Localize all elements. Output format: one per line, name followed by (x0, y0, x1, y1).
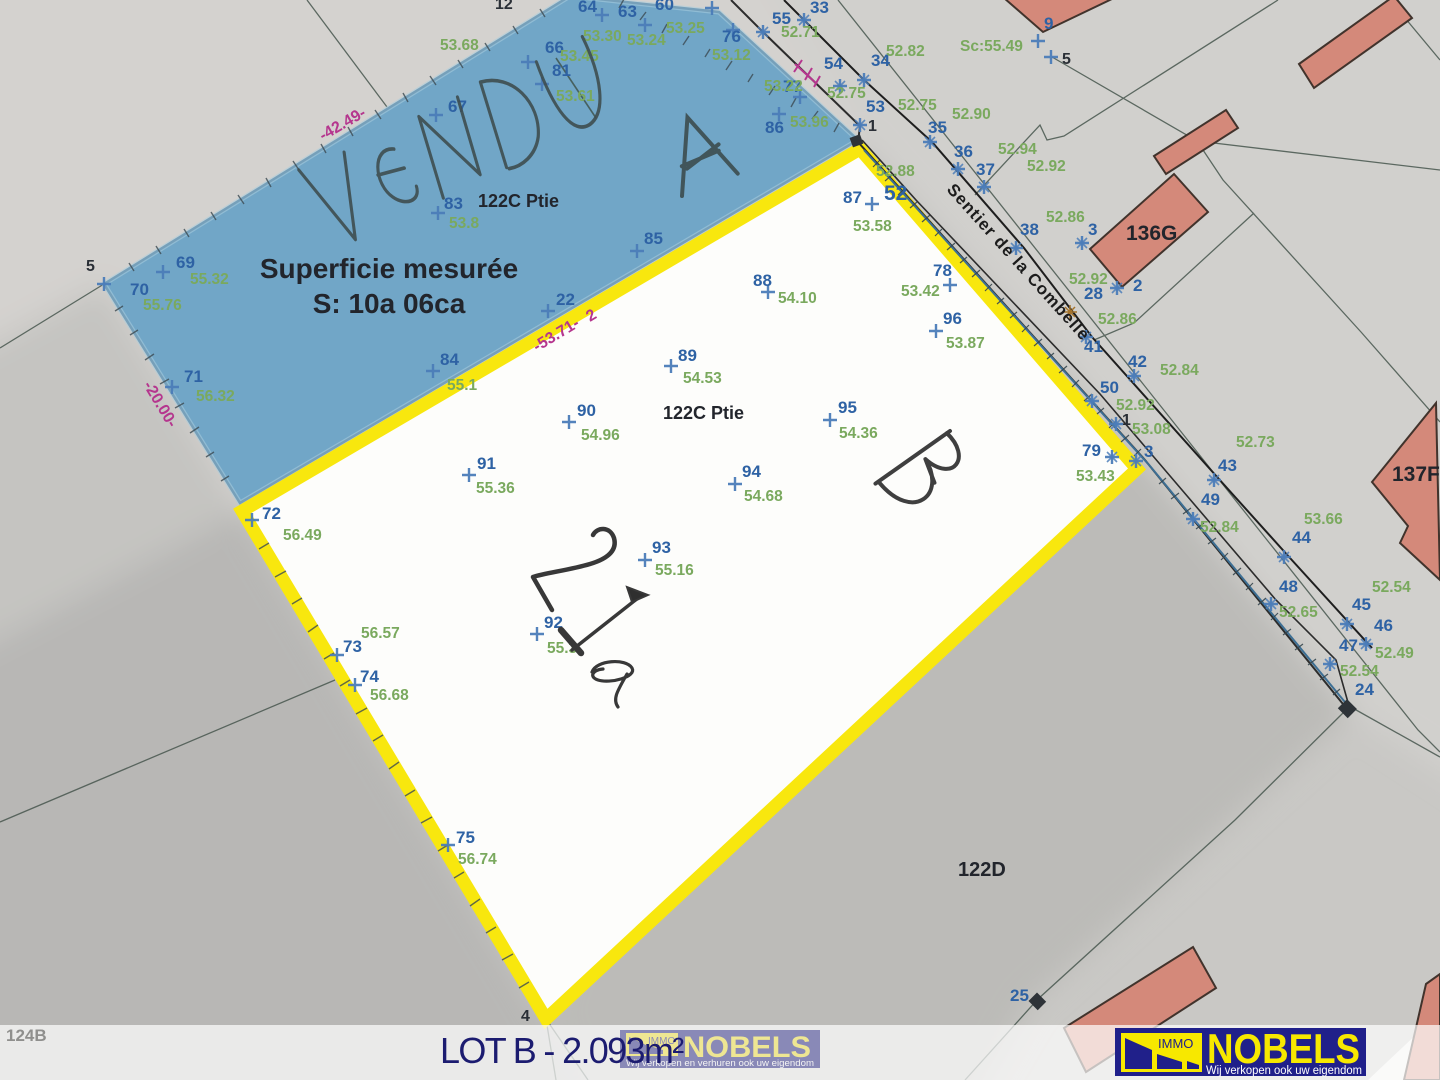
svg-text:53.66: 53.66 (1304, 511, 1343, 528)
svg-text:55.16: 55.16 (655, 562, 694, 579)
svg-text:56.74: 56.74 (458, 851, 497, 868)
svg-text:35: 35 (928, 118, 947, 137)
svg-text:69: 69 (176, 253, 195, 272)
svg-text:41: 41 (1084, 337, 1103, 356)
svg-text:53.22: 53.22 (764, 78, 803, 95)
svg-text:1: 1 (1122, 412, 1131, 429)
svg-text:52.84: 52.84 (1160, 362, 1199, 379)
svg-text:25: 25 (1010, 986, 1029, 1005)
svg-text:42: 42 (1128, 352, 1147, 371)
svg-text:52.90: 52.90 (952, 106, 991, 123)
svg-text:52.54: 52.54 (1340, 663, 1379, 680)
svg-text:9: 9 (1044, 14, 1053, 33)
svg-text:5: 5 (1062, 51, 1071, 68)
svg-text:53.08: 53.08 (1132, 421, 1171, 438)
svg-text:52.88: 52.88 (876, 163, 915, 180)
svg-text:53.61: 53.61 (556, 88, 595, 105)
svg-text:124B: 124B (6, 1026, 47, 1045)
svg-text:90: 90 (577, 401, 596, 420)
svg-text:12: 12 (495, 0, 513, 13)
svg-text:S: 10a 06ca: S: 10a 06ca (313, 288, 466, 319)
svg-text:53.25: 53.25 (666, 20, 705, 37)
svg-text:53.12: 53.12 (712, 47, 751, 64)
svg-text:52.73: 52.73 (1236, 434, 1275, 451)
svg-text:71: 71 (184, 367, 203, 386)
svg-text:96: 96 (943, 309, 962, 328)
svg-text:64: 64 (578, 0, 597, 16)
svg-text:137F2: 137F2 (1392, 463, 1440, 486)
svg-text:94: 94 (742, 462, 761, 481)
svg-text:52.49: 52.49 (1375, 645, 1414, 662)
svg-text:93: 93 (652, 538, 671, 557)
svg-text:52.86: 52.86 (1098, 311, 1137, 328)
svg-text:78: 78 (933, 261, 952, 280)
svg-text:LOT B - 2.093m²: LOT B - 2.093m² (440, 1030, 684, 1071)
svg-text:56.57: 56.57 (361, 625, 400, 642)
svg-text:52.94: 52.94 (998, 141, 1037, 158)
svg-text:38: 38 (1020, 220, 1039, 239)
svg-text:52.92: 52.92 (1069, 271, 1108, 288)
svg-text:83: 83 (444, 194, 463, 213)
svg-text:3: 3 (1088, 220, 1097, 239)
svg-text:54: 54 (824, 54, 843, 73)
svg-text:52.75: 52.75 (827, 85, 866, 102)
svg-text:55.32: 55.32 (190, 271, 229, 288)
svg-text:3: 3 (1144, 442, 1153, 461)
svg-text:48: 48 (1279, 577, 1298, 596)
svg-text:4: 4 (521, 1008, 530, 1025)
svg-text:122C Ptie: 122C Ptie (663, 403, 744, 423)
svg-text:44: 44 (1292, 528, 1311, 547)
svg-text:52: 52 (884, 182, 907, 205)
svg-text:2: 2 (1133, 276, 1142, 295)
svg-text:53.43: 53.43 (1076, 468, 1115, 485)
svg-text:53.30: 53.30 (583, 28, 622, 45)
svg-text:36: 36 (954, 142, 973, 161)
svg-text:95: 95 (838, 398, 857, 417)
svg-text:56.49: 56.49 (283, 527, 322, 544)
svg-text:52.86: 52.86 (1046, 209, 1085, 226)
svg-text:52.71: 52.71 (781, 24, 820, 41)
svg-text:53.87: 53.87 (946, 335, 985, 352)
svg-text:43: 43 (1218, 456, 1237, 475)
svg-text:52.82: 52.82 (886, 43, 925, 60)
svg-text:73: 73 (343, 637, 362, 656)
svg-text:55.1: 55.1 (447, 377, 478, 394)
svg-text:22: 22 (556, 290, 575, 309)
svg-text:52.54: 52.54 (1372, 579, 1411, 596)
svg-text:79: 79 (1082, 441, 1101, 460)
svg-text:52.84: 52.84 (1200, 519, 1239, 536)
svg-text:54.96: 54.96 (581, 427, 620, 444)
svg-text:Superficie mesurée: Superficie mesurée (260, 253, 518, 284)
svg-text:91: 91 (477, 454, 496, 473)
svg-text:53.96: 53.96 (790, 114, 829, 131)
svg-text:IMMO: IMMO (1158, 1036, 1193, 1051)
svg-text:46: 46 (1374, 616, 1393, 635)
svg-text:24: 24 (1355, 680, 1374, 699)
svg-text:89: 89 (678, 346, 697, 365)
svg-text:84: 84 (440, 350, 459, 369)
svg-text:63: 63 (618, 2, 637, 21)
svg-text:Sc:55.49: Sc:55.49 (960, 38, 1023, 55)
svg-text:60: 60 (655, 0, 674, 14)
svg-text:74: 74 (360, 667, 379, 686)
svg-text:87: 87 (843, 188, 862, 207)
svg-text:75: 75 (456, 828, 475, 847)
svg-text:88: 88 (753, 271, 772, 290)
svg-text:5: 5 (86, 258, 95, 275)
svg-text:53.24: 53.24 (627, 32, 666, 49)
svg-text:136G: 136G (1126, 222, 1177, 245)
svg-text:47: 47 (1339, 636, 1358, 655)
svg-text:76: 76 (722, 27, 741, 46)
svg-text:33: 33 (810, 0, 829, 17)
svg-text:52.92: 52.92 (1027, 158, 1066, 175)
svg-text:86: 86 (765, 118, 784, 137)
svg-text:56.68: 56.68 (370, 687, 409, 704)
svg-text:37: 37 (976, 160, 995, 179)
svg-text:55.36: 55.36 (476, 480, 515, 497)
svg-text:54.53: 54.53 (683, 370, 722, 387)
svg-text:72: 72 (262, 504, 281, 523)
svg-text:56.32: 56.32 (196, 388, 235, 405)
svg-text:54.36: 54.36 (839, 425, 878, 442)
svg-text:53.8: 53.8 (449, 215, 480, 232)
svg-text:55.76: 55.76 (143, 297, 182, 314)
svg-text:53.58: 53.58 (853, 218, 892, 235)
svg-text:85: 85 (644, 229, 663, 248)
svg-text:122D: 122D (958, 859, 1006, 881)
svg-text:53.42: 53.42 (901, 283, 940, 300)
svg-text:52.65: 52.65 (1279, 604, 1318, 621)
svg-text:54.10: 54.10 (778, 290, 817, 307)
svg-text:53.68: 53.68 (440, 37, 479, 54)
svg-text:Wij verkopen ook uw eigendom: Wij verkopen ook uw eigendom (1206, 1065, 1362, 1077)
svg-text:45: 45 (1352, 595, 1371, 614)
svg-text:50: 50 (1100, 378, 1119, 397)
svg-text:52.92: 52.92 (1116, 397, 1155, 414)
svg-text:122C Ptie: 122C Ptie (478, 191, 559, 211)
svg-text:53: 53 (866, 97, 885, 116)
svg-text:49: 49 (1201, 490, 1220, 509)
svg-text:54.68: 54.68 (744, 488, 783, 505)
svg-text:52.75: 52.75 (898, 97, 937, 114)
svg-text:1: 1 (868, 118, 877, 135)
